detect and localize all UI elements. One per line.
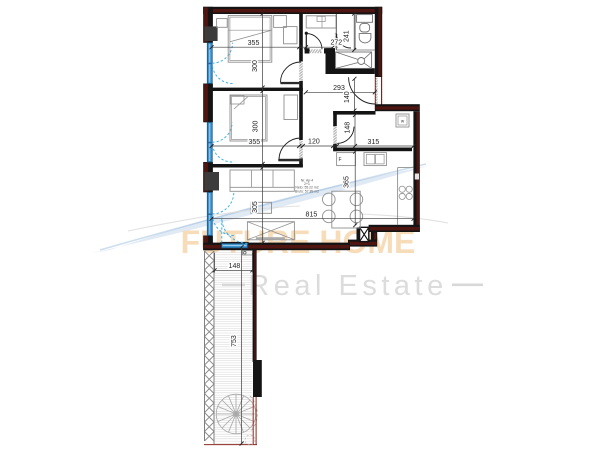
svg-text:355: 355 bbox=[248, 40, 260, 47]
svg-text:355: 355 bbox=[248, 139, 260, 146]
svg-text:300: 300 bbox=[252, 60, 259, 72]
svg-text:F: F bbox=[338, 157, 341, 163]
svg-text:140: 140 bbox=[344, 91, 351, 103]
svg-text:148: 148 bbox=[229, 263, 241, 270]
svg-text:315: 315 bbox=[368, 139, 380, 146]
svg-text:Real Estate: Real Estate bbox=[248, 270, 447, 302]
svg-text:241: 241 bbox=[344, 30, 351, 42]
svg-text:272: 272 bbox=[330, 40, 342, 47]
svg-text:293: 293 bbox=[333, 85, 345, 92]
svg-text:815: 815 bbox=[306, 212, 318, 219]
svg-text:365: 365 bbox=[343, 176, 350, 188]
svg-text:Bruto: 57.89 m2: Bruto: 57.89 m2 bbox=[295, 189, 319, 193]
svg-text:120: 120 bbox=[308, 139, 320, 146]
svg-text:300: 300 bbox=[253, 120, 260, 132]
svg-text:305: 305 bbox=[252, 201, 259, 213]
svg-text:753: 753 bbox=[231, 335, 238, 347]
svg-text:148: 148 bbox=[344, 122, 351, 134]
